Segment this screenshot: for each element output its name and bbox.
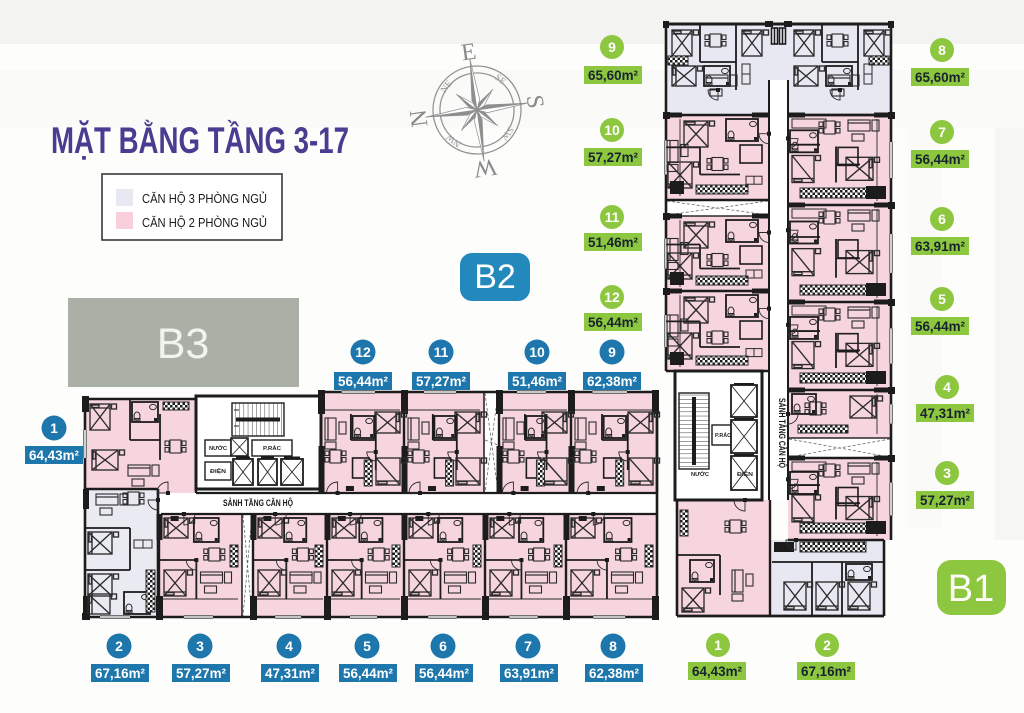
svg-text:4: 4 [285, 638, 293, 654]
svg-text:56,44m²: 56,44m² [419, 666, 469, 681]
svg-text:10: 10 [604, 122, 620, 138]
svg-text:7: 7 [524, 638, 532, 654]
svg-text:11: 11 [605, 209, 620, 225]
svg-text:SẢNH TẦNG CĂN HỘ: SẢNH TẦNG CĂN HỘ [223, 497, 293, 509]
svg-text:4: 4 [943, 379, 951, 395]
svg-text:7: 7 [938, 124, 946, 140]
svg-text:P.RÁC: P.RÁC [715, 432, 731, 439]
svg-text:57,27m²: 57,27m² [588, 150, 638, 165]
svg-text:12: 12 [604, 289, 620, 305]
svg-text:12: 12 [355, 344, 371, 360]
svg-text:B3: B3 [157, 320, 210, 368]
svg-text:2: 2 [823, 637, 831, 653]
svg-text:8: 8 [938, 42, 946, 58]
svg-text:65,60m²: 65,60m² [915, 70, 965, 85]
svg-text:56,44m²: 56,44m² [588, 315, 638, 330]
svg-text:1: 1 [714, 637, 722, 653]
svg-text:2: 2 [115, 638, 123, 654]
svg-text:62,38m²: 62,38m² [589, 666, 639, 681]
svg-text:B2: B2 [474, 258, 516, 296]
svg-text:57,27m²: 57,27m² [176, 666, 226, 681]
svg-text:57,27m²: 57,27m² [920, 493, 970, 508]
svg-text:1: 1 [50, 420, 58, 436]
svg-text:63,91m²: 63,91m² [915, 239, 965, 254]
svg-text:P.RÁC: P.RÁC [263, 445, 281, 452]
svg-text:SẢNH TẦNG CĂN HỘ: SẢNH TẦNG CĂN HỘ [776, 398, 788, 468]
svg-text:56,44m²: 56,44m² [338, 374, 388, 389]
svg-text:5: 5 [363, 638, 371, 654]
svg-text:3: 3 [943, 465, 951, 481]
svg-text:6: 6 [439, 638, 447, 654]
svg-text:9: 9 [608, 344, 616, 360]
svg-text:B1: B1 [948, 568, 994, 610]
svg-text:9: 9 [608, 39, 616, 55]
svg-text:NƯỚC: NƯỚC [691, 470, 709, 478]
svg-text:51,46m²: 51,46m² [588, 235, 638, 250]
svg-text:W: W [472, 153, 498, 182]
svg-text:11: 11 [434, 344, 449, 360]
svg-text:62,38m²: 62,38m² [587, 374, 637, 389]
svg-text:67,16m²: 67,16m² [95, 666, 145, 681]
svg-text:47,31m²: 47,31m² [265, 666, 315, 681]
svg-text:NƯỚC: NƯỚC [209, 444, 227, 452]
svg-text:3: 3 [196, 638, 204, 654]
svg-text:6: 6 [938, 211, 946, 227]
svg-text:47,31m²: 47,31m² [920, 406, 970, 421]
svg-text:56,44m²: 56,44m² [915, 152, 965, 167]
svg-text:MẶT BẰNG TẦNG 3-17: MẶT BẰNG TẦNG 3-17 [51, 120, 349, 161]
svg-text:ĐIỆN: ĐIỆN [737, 470, 753, 478]
svg-text:CĂN HỘ 3 PHÒNG NGỦ: CĂN HỘ 3 PHÒNG NGỦ [142, 191, 267, 206]
svg-text:56,44m²: 56,44m² [343, 666, 393, 681]
svg-text:63,91m²: 63,91m² [504, 666, 554, 681]
svg-text:67,16m²: 67,16m² [801, 664, 851, 679]
svg-text:64,43m²: 64,43m² [692, 664, 742, 679]
svg-text:56,44m²: 56,44m² [915, 319, 965, 334]
svg-text:8: 8 [609, 638, 617, 654]
svg-text:64,43m²: 64,43m² [29, 448, 79, 463]
svg-text:N: N [405, 108, 433, 129]
svg-text:5: 5 [938, 291, 946, 307]
svg-text:ĐIỆN: ĐIỆN [210, 467, 226, 475]
svg-text:57,27m²: 57,27m² [416, 374, 466, 389]
svg-text:51,46m²: 51,46m² [512, 374, 562, 389]
svg-text:65,60m²: 65,60m² [588, 68, 638, 83]
svg-text:10: 10 [529, 344, 545, 360]
svg-text:CĂN HỘ 2 PHÒNG NGỦ: CĂN HỘ 2 PHÒNG NGỦ [142, 215, 267, 230]
